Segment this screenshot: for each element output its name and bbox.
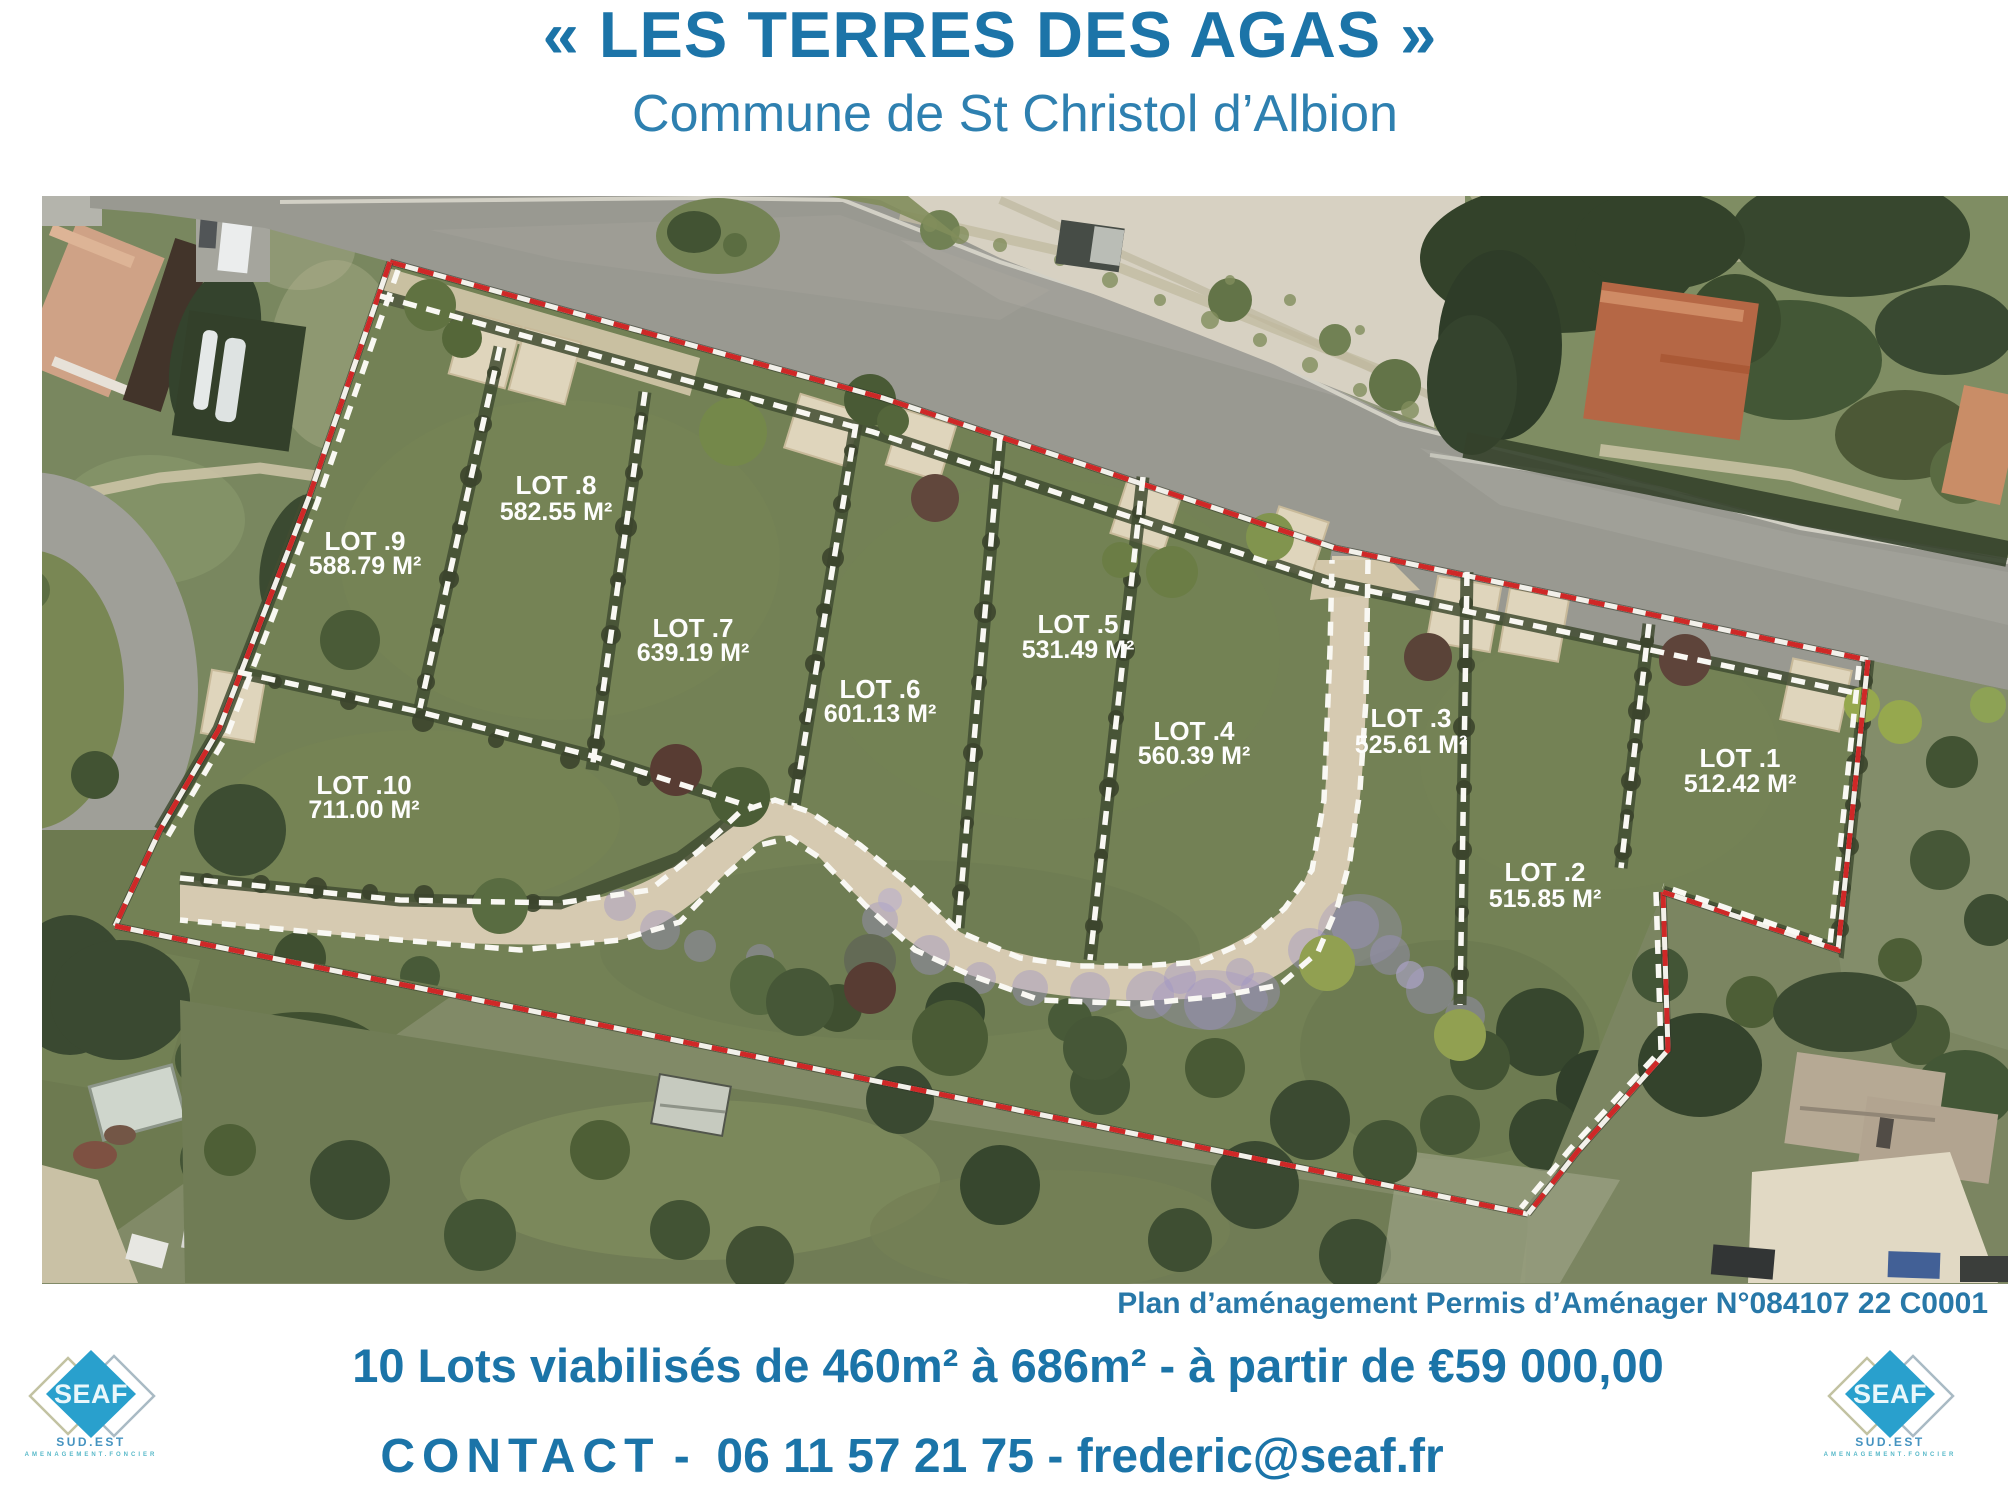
svg-text:AMENAGEMENT.FONCIER: AMENAGEMENT.FONCIER <box>25 1452 158 1458</box>
svg-text:SUD.EST: SUD.EST <box>56 1435 126 1449</box>
svg-text:AMENAGEMENT.FONCIER: AMENAGEMENT.FONCIER <box>1824 1452 1957 1458</box>
svg-text:SEAF: SEAF <box>54 1379 128 1409</box>
svg-text:SUD.EST: SUD.EST <box>1855 1435 1925 1449</box>
svg-text:SEAF: SEAF <box>1853 1379 1927 1409</box>
